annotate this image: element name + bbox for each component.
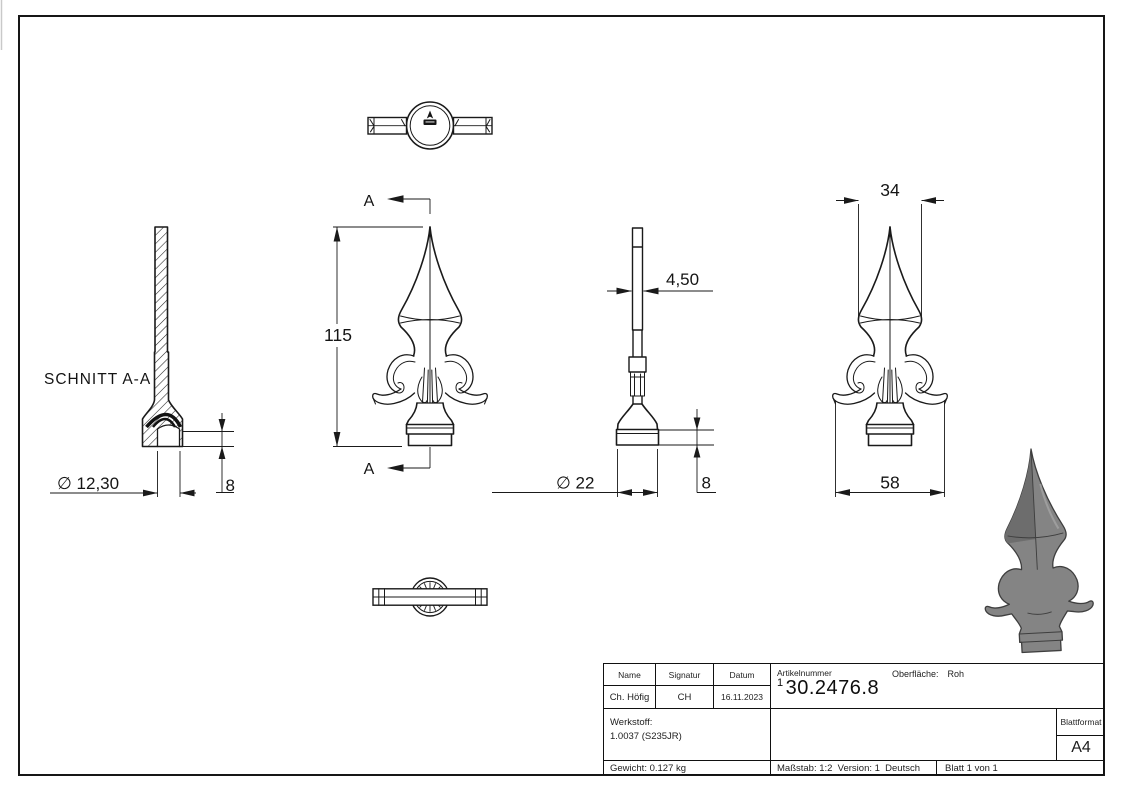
svg-text:∅ 22: ∅ 22 xyxy=(556,474,594,493)
svg-text:8: 8 xyxy=(702,474,711,493)
section-arrow-bottom: A xyxy=(364,447,430,478)
name-header-cell: Name xyxy=(604,664,656,686)
surface-value: Roh xyxy=(948,669,965,679)
article-number-sup: 1 xyxy=(777,677,784,689)
empty-cell xyxy=(771,709,1057,761)
signature-value-cell: CH xyxy=(656,686,714,709)
version-value: Version: 1 xyxy=(838,763,880,774)
dim-diameter-12-30: ∅ 12,30 xyxy=(50,451,196,497)
section-label: SCHNITT A-A xyxy=(44,371,151,388)
material-cell: Werkstoff: 1.0037 (S235JR) xyxy=(604,709,771,761)
svg-text:115: 115 xyxy=(324,325,352,345)
svg-text:∅ 12,30: ∅ 12,30 xyxy=(57,474,119,493)
dim-base-height-8: 8 xyxy=(183,413,235,495)
brand-mark-icon xyxy=(424,111,437,126)
sheet-format-value-cell: A4 xyxy=(1057,736,1105,761)
drawing-sheet: SCHNITT A-A ∅ 12,30 8 A A xyxy=(0,0,1123,794)
rotated-front-view: 34 58 xyxy=(833,180,948,497)
article-number-value: 130.2476.8 xyxy=(777,677,879,700)
dim-leaf-width-58: 58 xyxy=(836,401,945,497)
svg-text:4,50: 4,50 xyxy=(666,270,699,289)
title-block: Name Signatur Datum Ch. Höfig CH 16.11.2… xyxy=(603,663,1104,775)
material-label: Werkstoff: xyxy=(610,716,770,730)
side-view: 4,50 ∅ 22 8 xyxy=(492,228,716,497)
svg-text:A: A xyxy=(364,193,375,210)
surface-label: Oberfläche: xyxy=(892,669,939,679)
svg-text:58: 58 xyxy=(880,473,899,493)
sheet-number-cell: Blatt 1 von 1 xyxy=(937,761,1105,776)
dim-blade-thickness-4-50: 4,50 xyxy=(607,270,713,294)
scale-version-language-cell: Maßstab: 1:2 Version: 1 Deutsch xyxy=(771,761,937,776)
date-value-cell: 16.11.2023 xyxy=(714,686,771,709)
language-value: Deutsch xyxy=(885,763,920,774)
dim-base-diameter-22: ∅ 22 xyxy=(492,449,658,497)
bottom-view xyxy=(373,578,487,616)
dim-collar-height-8: 8 xyxy=(659,409,716,493)
section-arrow-top: A xyxy=(364,193,430,214)
render-3d-view xyxy=(977,446,1095,654)
scale-value: Maßstab: 1:2 xyxy=(777,763,832,774)
weight-cell: Gewicht: 0.127 kg xyxy=(604,761,771,776)
svg-text:34: 34 xyxy=(880,180,900,200)
name-value-cell: Ch. Höfig xyxy=(604,686,656,709)
date-header-cell: Datum xyxy=(714,664,771,686)
surface-finish: Oberfläche:Roh xyxy=(892,669,973,679)
svg-text:A: A xyxy=(364,461,375,478)
material-value: 1.0037 (S235JR) xyxy=(610,730,770,744)
dim-total-height-115: 115 xyxy=(324,227,423,447)
sheet-frame xyxy=(19,16,1104,775)
front-view: A A 115 xyxy=(324,193,487,478)
section-view: SCHNITT A-A ∅ 12,30 8 xyxy=(44,227,235,497)
svg-text:8: 8 xyxy=(226,476,235,495)
sheet-format-label-cell: Blattformat xyxy=(1057,709,1105,736)
top-view xyxy=(368,102,492,149)
signature-header-cell: Signatur xyxy=(656,664,714,686)
article-number-cell: Artikelnummer Oberfläche:Roh 130.2476.8 xyxy=(771,664,1105,709)
